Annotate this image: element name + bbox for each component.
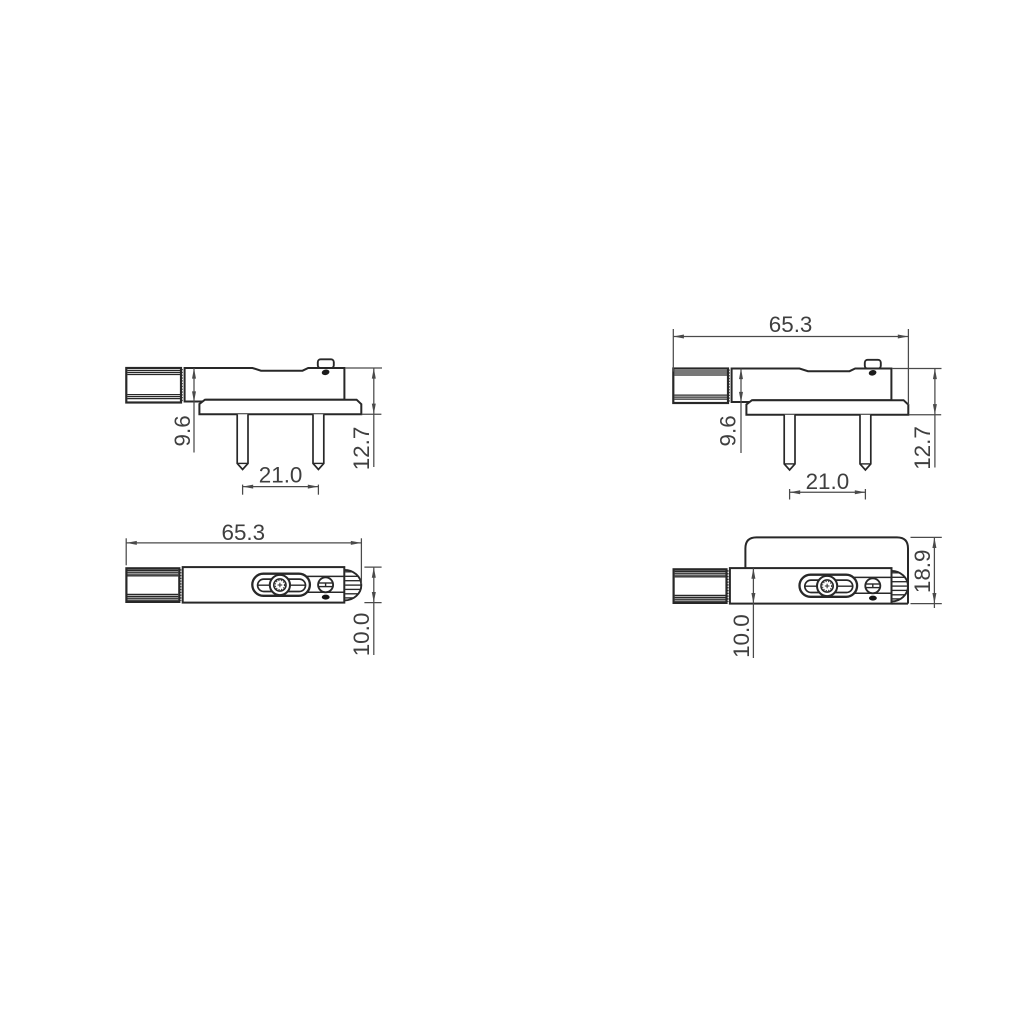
- svg-text:12.7: 12.7: [910, 426, 935, 470]
- svg-text:65.3: 65.3: [769, 312, 813, 337]
- svg-text:21.0: 21.0: [806, 469, 850, 494]
- svg-text:9.6: 9.6: [170, 415, 195, 446]
- svg-text:18.9: 18.9: [910, 550, 935, 594]
- svg-text:65.3: 65.3: [222, 520, 266, 545]
- svg-text:10.0: 10.0: [349, 613, 374, 657]
- svg-text:9.6: 9.6: [716, 415, 741, 446]
- svg-text:10.0: 10.0: [729, 614, 754, 658]
- svg-text:12.7: 12.7: [349, 427, 374, 471]
- svg-text:21.0: 21.0: [259, 463, 303, 488]
